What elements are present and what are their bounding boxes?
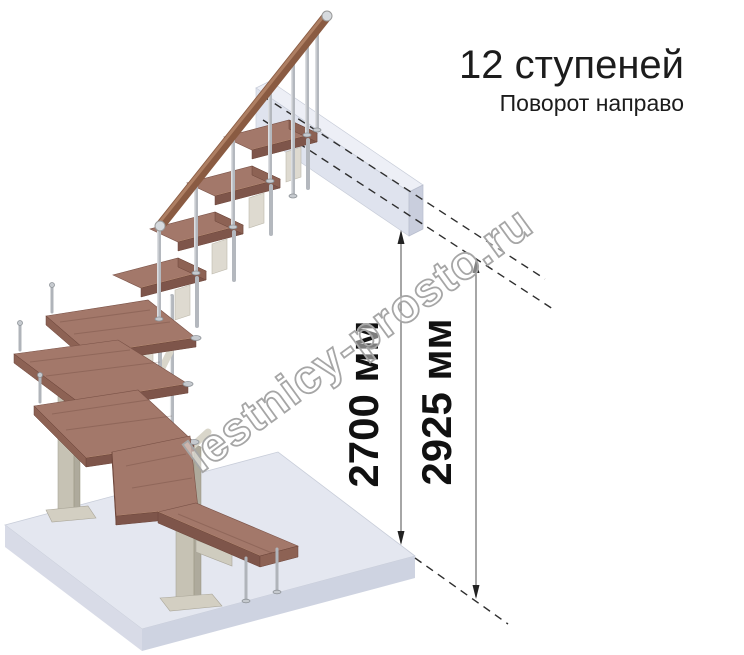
staircase-illustration: 2700 мм 2925 мм lestnicy-prosto.ru 12 ст…: [0, 0, 744, 655]
handrail-top-cap: [322, 11, 332, 21]
page-subtitle: Поворот направо: [500, 90, 684, 116]
handrail-end-cap: [155, 221, 165, 231]
upper-landing-slab: [256, 81, 423, 236]
page-title: 12 ступеней: [459, 43, 684, 87]
dimension-label-2925: 2925 мм: [413, 318, 460, 485]
dimension-2700: 2700 мм: [340, 230, 405, 545]
landing-end-face: [409, 185, 423, 236]
extension-line-floor: [415, 558, 508, 624]
staircase-diagram-page: 2700 мм 2925 мм lestnicy-prosto.ru 12 ст…: [0, 0, 744, 655]
